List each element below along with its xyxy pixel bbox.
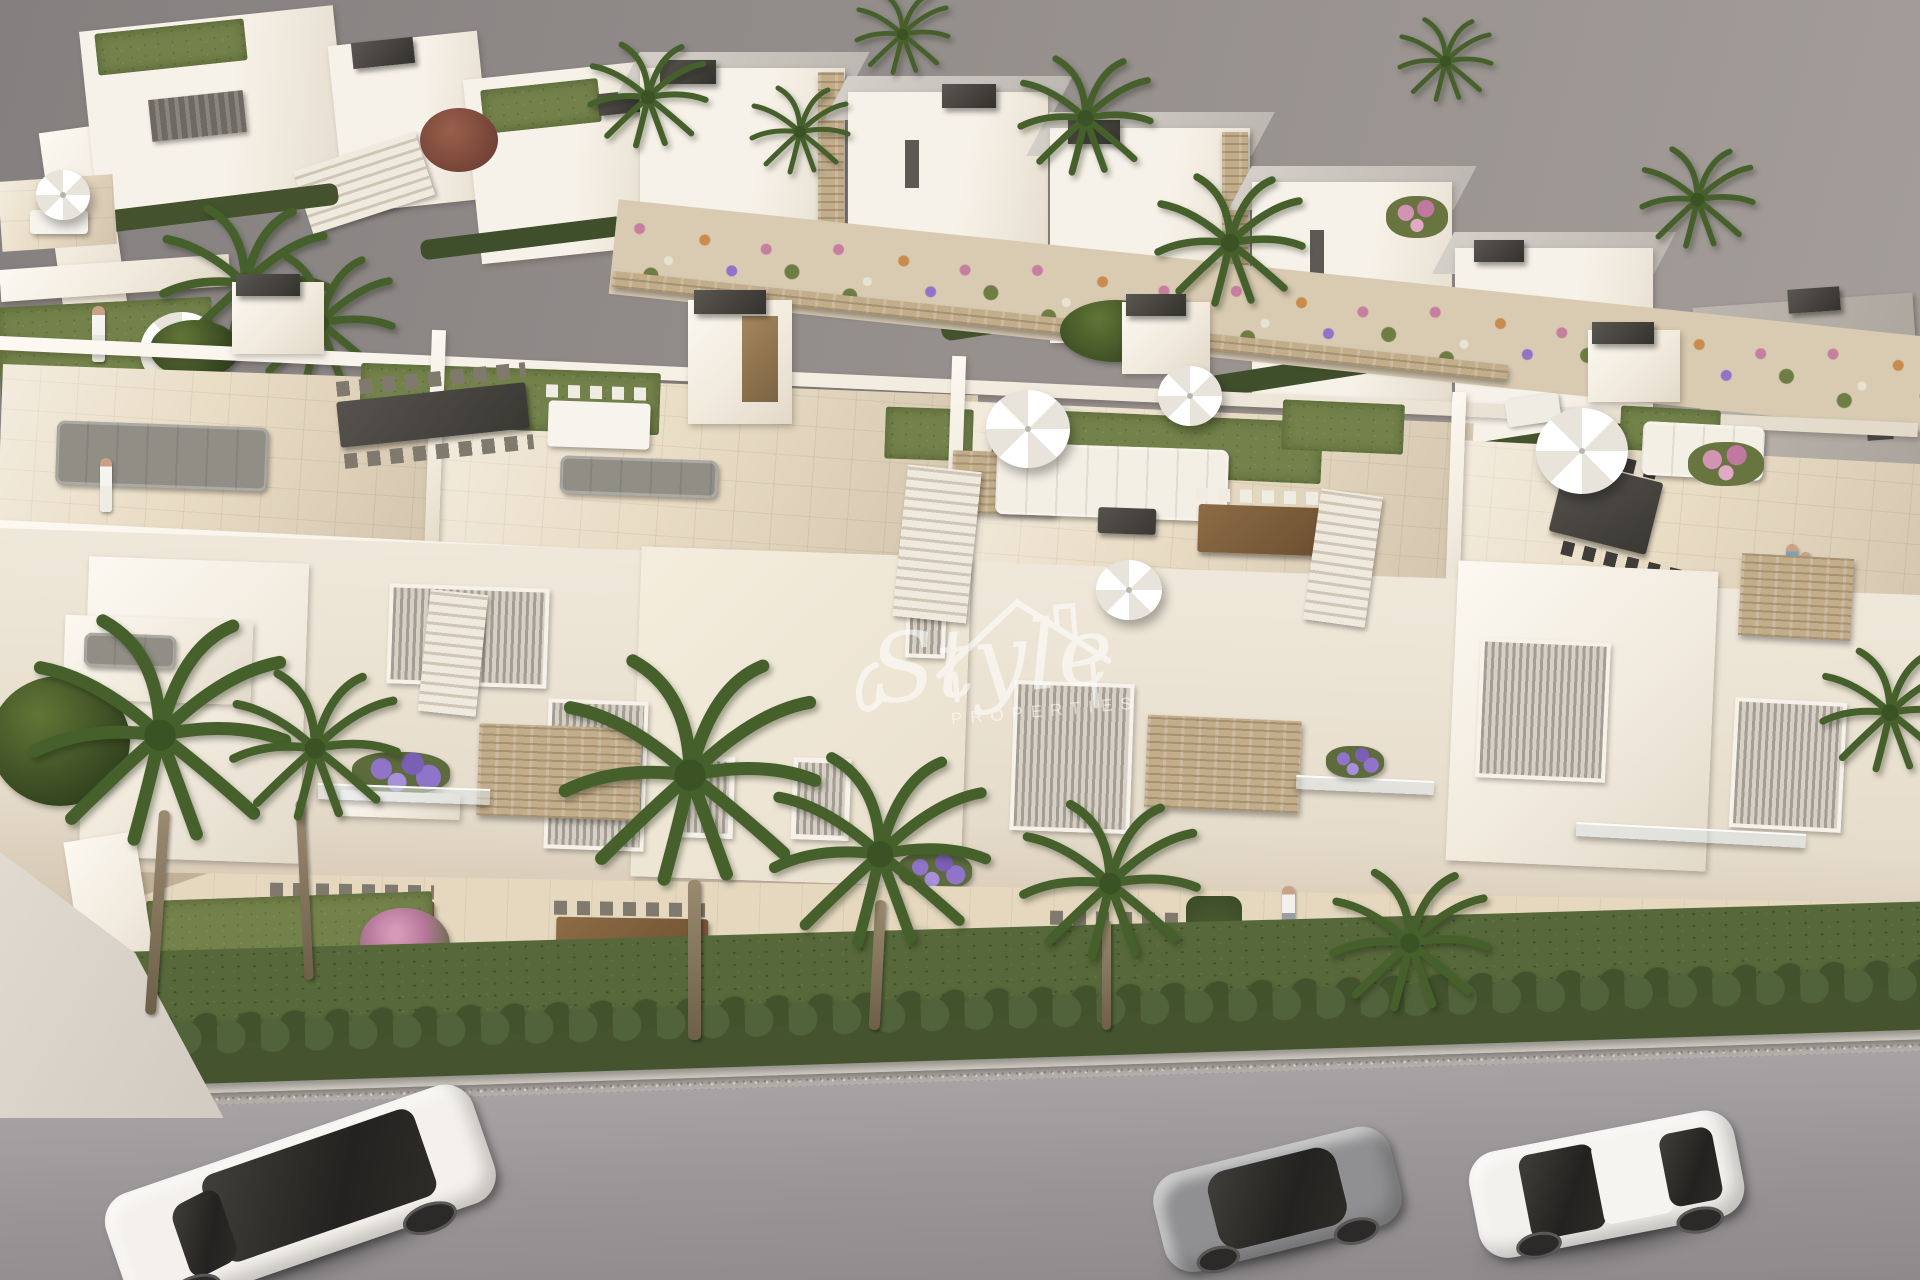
palm-tree (1640, 140, 1755, 255)
coffee-table (1098, 507, 1157, 535)
louvered-window (1475, 637, 1611, 783)
palm-tree (1398, 12, 1493, 107)
patio-umbrella (1536, 408, 1628, 494)
roof-vent-box (1787, 286, 1841, 314)
outdoor-corner-sofa (55, 420, 269, 491)
villa-window (905, 140, 919, 188)
bulkhead-cap (694, 290, 766, 314)
dining-chairs (554, 901, 708, 918)
palm-tree (1820, 640, 1920, 780)
stone-facade-panel (1738, 553, 1854, 641)
palm-trunk (688, 880, 701, 1040)
aerial-development-render: Style PROPERTIES (0, 0, 1920, 1280)
roof-vent-box (1474, 240, 1524, 262)
rooftop-lawn (1281, 399, 1405, 454)
bulkhead-cap (1592, 322, 1654, 344)
patio-umbrella (1158, 366, 1222, 426)
palm-tree (770, 740, 990, 960)
watermark: Style PROPERTIES (835, 556, 1169, 763)
outdoor-dining-table (1197, 504, 1321, 556)
palm-tree (855, 0, 950, 80)
patio-umbrella (36, 170, 90, 220)
red-leaf-tree (420, 108, 498, 172)
patio-umbrella (986, 390, 1070, 468)
palm-tree (1330, 860, 1490, 1020)
palm-tree (1018, 48, 1153, 183)
villa-window (1310, 230, 1324, 276)
pink-bougainvillea (1688, 442, 1764, 486)
palm-tree (1020, 790, 1200, 970)
palm-tree (588, 35, 708, 155)
bulkhead-cap (236, 274, 300, 296)
person-figure (100, 458, 112, 512)
bulkhead-door (742, 316, 778, 402)
palm-tree (230, 660, 400, 830)
palm-tree (1155, 165, 1305, 315)
bulkhead-cap (1126, 294, 1186, 316)
purple-flower-box (1326, 746, 1384, 778)
outdoor-sofa (559, 455, 718, 498)
outdoor-dining-table (547, 400, 651, 450)
pink-bougainvillea (1386, 196, 1448, 238)
palm-tree (750, 80, 850, 180)
roof-vent-box (942, 84, 996, 108)
